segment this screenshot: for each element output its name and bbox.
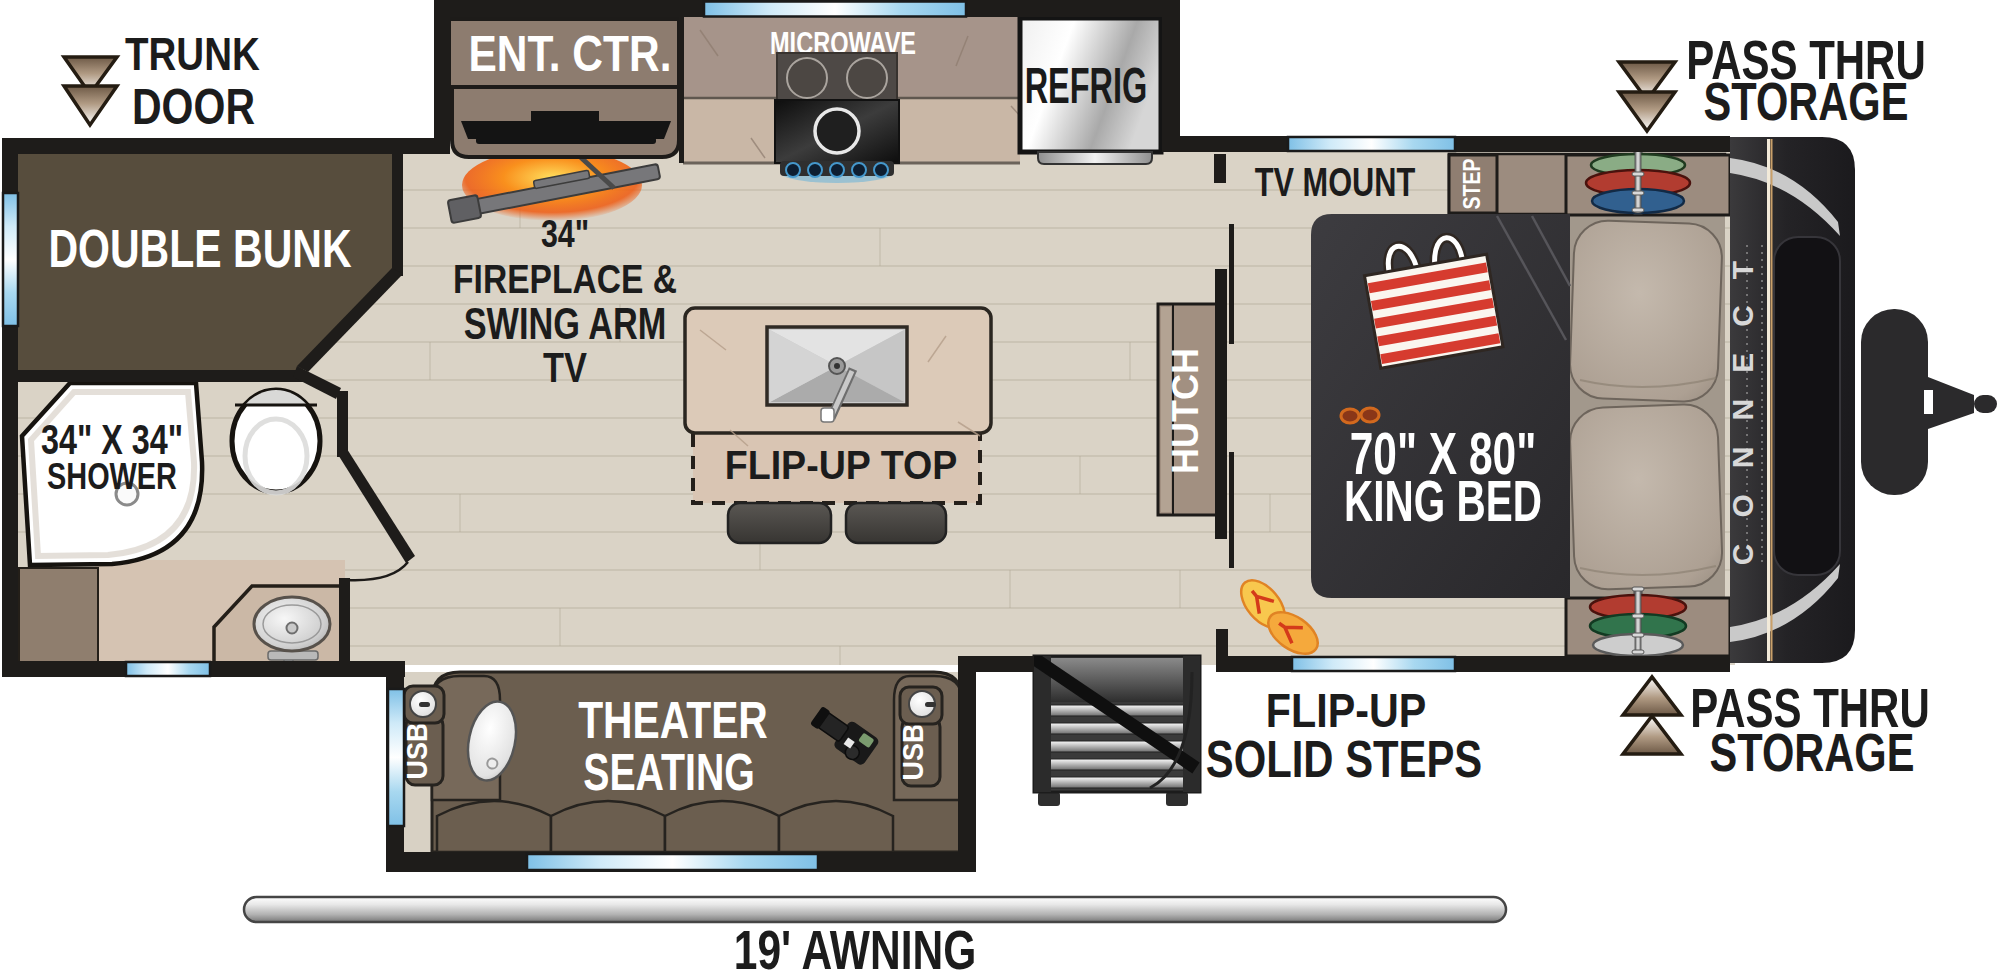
svg-text:19' AWNING: 19' AWNING [734, 918, 977, 972]
svg-text:THEATER: THEATER [578, 692, 768, 749]
svg-text:SWING ARM: SWING ARM [464, 299, 667, 348]
svg-text:TRUNK: TRUNK [125, 27, 260, 79]
svg-text:TV: TV [543, 343, 587, 390]
svg-text:DOUBLE BUNK: DOUBLE BUNK [48, 219, 351, 279]
svg-text:SEATING: SEATING [583, 744, 755, 801]
svg-text:TV MOUNT: TV MOUNT [1255, 159, 1415, 205]
svg-text:CONNECT: CONNECT [1726, 235, 1759, 565]
svg-text:STORAGE: STORAGE [1704, 71, 1909, 132]
svg-text:SHOWER: SHOWER [47, 456, 177, 497]
svg-text:34": 34" [541, 213, 589, 255]
svg-text:FLIP-UP: FLIP-UP [1266, 683, 1426, 737]
svg-text:KING BED: KING BED [1344, 469, 1542, 532]
svg-text:SOLID STEPS: SOLID STEPS [1206, 731, 1482, 788]
svg-text:HUTCH: HUTCH [1165, 348, 1206, 474]
svg-text:DOOR: DOOR [132, 79, 255, 135]
svg-text:FLIP-UP TOP: FLIP-UP TOP [725, 443, 957, 487]
svg-text:USB: USB [896, 724, 930, 781]
svg-text:ENT. CTR.: ENT. CTR. [468, 26, 671, 82]
svg-text:FIREPLACE &: FIREPLACE & [453, 257, 677, 301]
svg-text:REFRIG: REFRIG [1025, 58, 1148, 114]
svg-text:STEP: STEP [1460, 158, 1486, 209]
svg-text:STORAGE: STORAGE [1710, 722, 1915, 783]
